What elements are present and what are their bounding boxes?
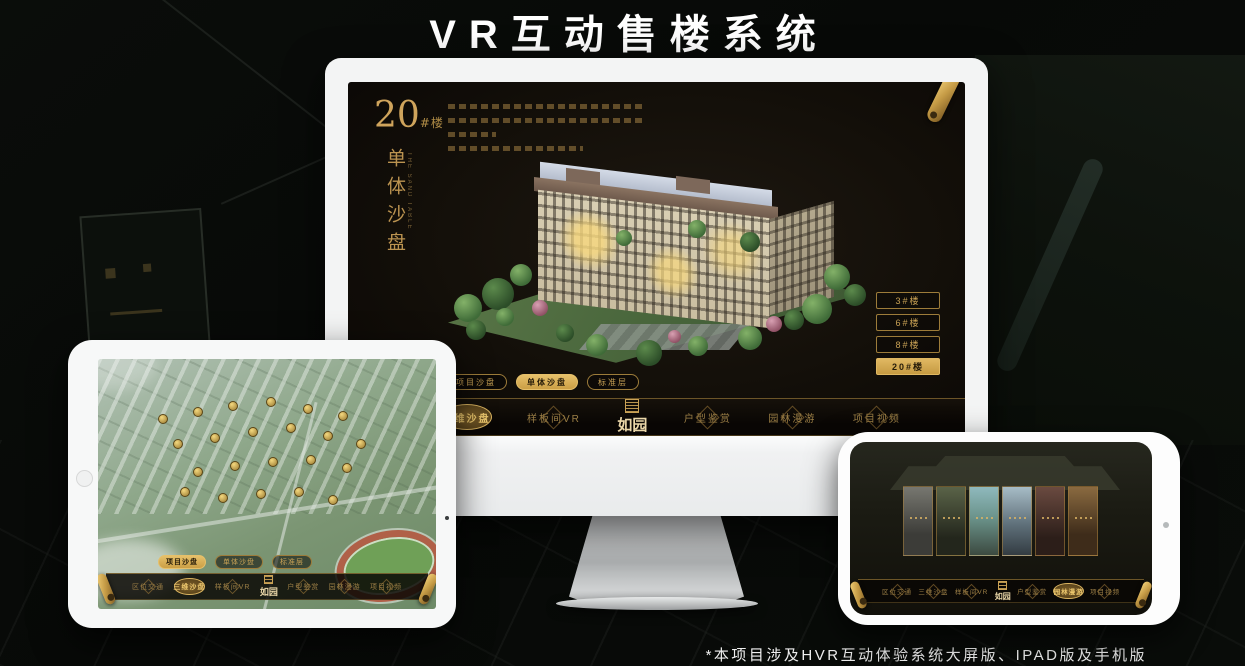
gallery-card-4[interactable] <box>1002 486 1032 556</box>
building-marker-icon <box>303 404 313 414</box>
tablet-floor-tabs: 项目沙盘单体沙盘标准层 <box>158 555 312 569</box>
building-marker-icon <box>323 431 333 441</box>
tree <box>738 326 762 350</box>
monitor-stand <box>569 512 744 604</box>
promo-page: VR互动售楼系统 *本项目涉及HVR互动体验系统大屏版、IPAD版及手机版 20… <box>0 0 1245 666</box>
building-marker-icon <box>180 487 190 497</box>
building-marker-icon <box>173 439 183 449</box>
building-selector: 3#楼6#楼8#楼20#楼 <box>876 292 940 380</box>
tree <box>802 294 832 324</box>
nav-item-3[interactable]: 样板间VR <box>955 586 989 596</box>
nav-item-label: 户型鉴赏 <box>1017 586 1047 596</box>
section-subtitle-vertical: THE SAND TABLE <box>406 152 412 272</box>
brand-logo: 如园 <box>260 575 278 598</box>
nav-item-5[interactable]: 园林漫游 <box>768 410 816 425</box>
tree <box>688 220 706 238</box>
nav-item-6[interactable]: 项目视频 <box>370 582 402 592</box>
gallery-cards <box>903 486 1098 556</box>
building-marker-icon <box>230 461 240 471</box>
building-button[interactable]: 8#楼 <box>876 336 940 353</box>
floor-tab[interactable]: 单体沙盘 <box>215 555 263 569</box>
phone-navbar: 区位交通三维沙盘样板间VR如园户型鉴赏园林漫游项目视频 <box>858 579 1144 603</box>
nav-item-2[interactable]: 三维沙盘 <box>173 582 205 592</box>
tree <box>844 284 866 306</box>
tablet-device: 项目沙盘单体沙盘标准层 区位交通三维沙盘样板间VR如园户型鉴赏园林漫游项目视频 <box>68 340 456 628</box>
flower-shrub <box>532 300 548 316</box>
brand-seal-icon <box>998 581 1007 590</box>
brand-seal-icon <box>625 399 639 413</box>
building-marker-icon <box>338 411 348 421</box>
floor-tabs: 项目沙盘单体沙盘标准层 <box>445 374 639 390</box>
nav-item-label: 区位交通 <box>882 586 912 596</box>
gallery-card-3[interactable] <box>969 486 999 556</box>
scroll-menu-icon[interactable] <box>925 82 962 125</box>
brand-logo: 如园 <box>995 581 1011 602</box>
building-marker-icon <box>328 495 338 505</box>
tree <box>496 308 514 326</box>
footnote-text: *本项目涉及HVR互动体验系统大屏版、IPAD版及手机版 <box>706 644 1147 665</box>
nav-item-label: 园林漫游 <box>329 582 361 592</box>
building-marker-icon <box>248 427 258 437</box>
nav-item-1[interactable]: 区位交通 <box>882 586 912 596</box>
nav-item-label: 项目视频 <box>370 582 402 592</box>
tree <box>510 264 532 286</box>
building-button[interactable]: 6#楼 <box>876 314 940 331</box>
tree <box>784 310 804 330</box>
building-marker-icon <box>294 487 304 497</box>
nav-item-3[interactable]: 样板间VR <box>527 410 581 425</box>
flower-shrub <box>766 316 782 332</box>
building-marker-icon <box>266 397 276 407</box>
courtyard-gate-silhouette <box>890 456 1120 490</box>
aerial-buildings <box>98 359 436 514</box>
nav-item-6[interactable]: 项目视频 <box>853 410 901 425</box>
brand-logo: 如园 <box>617 399 647 435</box>
building-model-render[interactable] <box>440 148 880 384</box>
section-title-vertical: 单体沙盘 <box>382 148 409 308</box>
nav-item-1[interactable]: 区位交通 <box>132 582 164 592</box>
block-unit: #楼 <box>420 116 444 130</box>
building-marker-icon <box>286 423 296 433</box>
nav-item-label: 园林漫游 <box>1054 586 1084 596</box>
tree <box>616 230 632 246</box>
tablet-camera <box>445 516 449 520</box>
block-number: 20#楼 <box>374 98 444 134</box>
tree <box>556 324 574 342</box>
gallery-card-5[interactable] <box>1035 486 1065 556</box>
nav-item-label: 样板间VR <box>215 582 251 592</box>
gallery-card-6[interactable] <box>1068 486 1098 556</box>
nav-item-label: 园林漫游 <box>768 410 816 425</box>
tree <box>454 294 482 322</box>
brand-name: 如园 <box>617 414 647 435</box>
nav-item-label: 户型鉴赏 <box>287 582 319 592</box>
floor-tab[interactable]: 标准层 <box>272 555 312 569</box>
gallery-card-1[interactable] <box>903 486 933 556</box>
building-marker-icon <box>228 401 238 411</box>
brand-seal-icon <box>264 575 273 584</box>
tree <box>636 340 662 366</box>
building-marker-icon <box>218 493 228 503</box>
phone-device: 区位交通三维沙盘样板间VR如园户型鉴赏园林漫游项目视频 <box>838 432 1180 625</box>
nav-item-5[interactable]: 园林漫游 <box>1054 586 1084 596</box>
building-marker-icon <box>342 463 352 473</box>
building-marker-icon <box>356 439 366 449</box>
building-button[interactable]: 3#楼 <box>876 292 940 309</box>
nav-item-4[interactable]: 户型鉴赏 <box>1017 586 1047 596</box>
nav-item-3[interactable]: 样板间VR <box>215 582 251 592</box>
building-marker-icon <box>268 457 278 467</box>
building-marker-icon <box>193 467 203 477</box>
nav-item-label: 项目视频 <box>853 410 901 425</box>
nav-item-label: 三维沙盘 <box>173 582 205 592</box>
tree <box>740 232 760 252</box>
nav-item-2[interactable]: 三维沙盘 <box>918 586 948 596</box>
tree <box>688 336 708 356</box>
phone-screen: 区位交通三维沙盘样板间VR如园户型鉴赏园林漫游项目视频 <box>850 442 1152 615</box>
building-marker-icon <box>256 489 266 499</box>
flower-shrub <box>668 330 681 343</box>
floor-tab[interactable]: 标准层 <box>587 374 639 390</box>
nav-item-4[interactable]: 户型鉴赏 <box>684 410 732 425</box>
brand-name: 如园 <box>995 591 1011 602</box>
building-marker-icon <box>193 407 203 417</box>
tablet-home-button[interactable] <box>76 470 93 487</box>
tablet-screen: 项目沙盘单体沙盘标准层 区位交通三维沙盘样板间VR如园户型鉴赏园林漫游项目视频 <box>98 359 436 609</box>
building-marker-icon <box>306 455 316 465</box>
tree <box>482 278 514 310</box>
nav-item-label: 三维沙盘 <box>918 586 948 596</box>
nav-item-label: 区位交通 <box>132 582 164 592</box>
gallery-card-2[interactable] <box>936 486 966 556</box>
nav-item-5[interactable]: 园林漫游 <box>329 582 361 592</box>
tree <box>824 264 850 290</box>
building-button[interactable]: 20#楼 <box>876 358 940 375</box>
floor-tab[interactable]: 单体沙盘 <box>516 374 578 390</box>
building-marker-icon <box>158 414 168 424</box>
nav-item-4[interactable]: 户型鉴赏 <box>287 582 319 592</box>
phone-camera <box>1163 522 1169 528</box>
monitor-stand-base <box>556 597 758 610</box>
brand-name: 如园 <box>260 585 278 598</box>
page-title: VR互动售楼系统 <box>0 2 1245 60</box>
tree <box>586 334 608 356</box>
nav-item-label: 样板间VR <box>527 410 581 425</box>
floor-tab[interactable]: 项目沙盘 <box>158 555 206 569</box>
background-sign-board <box>79 208 210 352</box>
building-marker-icon <box>210 433 220 443</box>
nav-item-label: 样板间VR <box>955 586 989 596</box>
tablet-navbar: 区位交通三维沙盘样板间VR如园户型鉴赏园林漫游项目视频 <box>106 573 428 600</box>
background-aerial-photo <box>975 55 1245 445</box>
nav-item-label: 项目视频 <box>1090 586 1120 596</box>
tree <box>466 320 486 340</box>
nav-item-label: 户型鉴赏 <box>684 410 732 425</box>
nav-item-6[interactable]: 项目视频 <box>1090 586 1120 596</box>
